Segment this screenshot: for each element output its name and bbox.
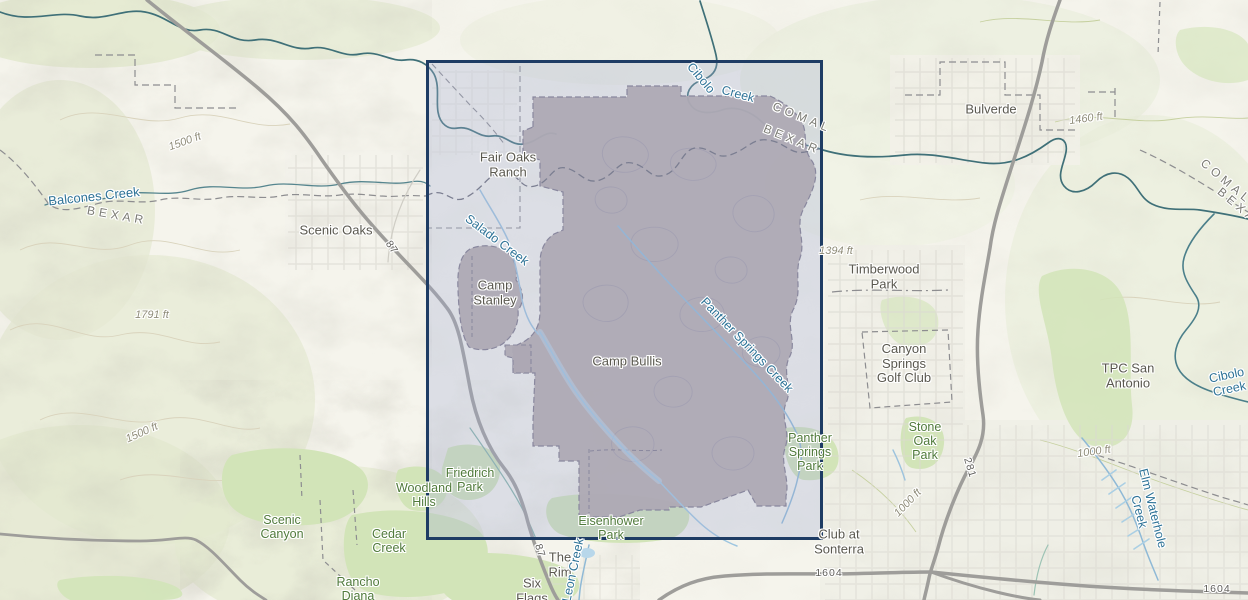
selection-extent-box[interactable] [426,60,823,540]
map-viewport[interactable]: Balcones CreekBEXARScenic Oaks1791 ft150… [0,0,1248,600]
